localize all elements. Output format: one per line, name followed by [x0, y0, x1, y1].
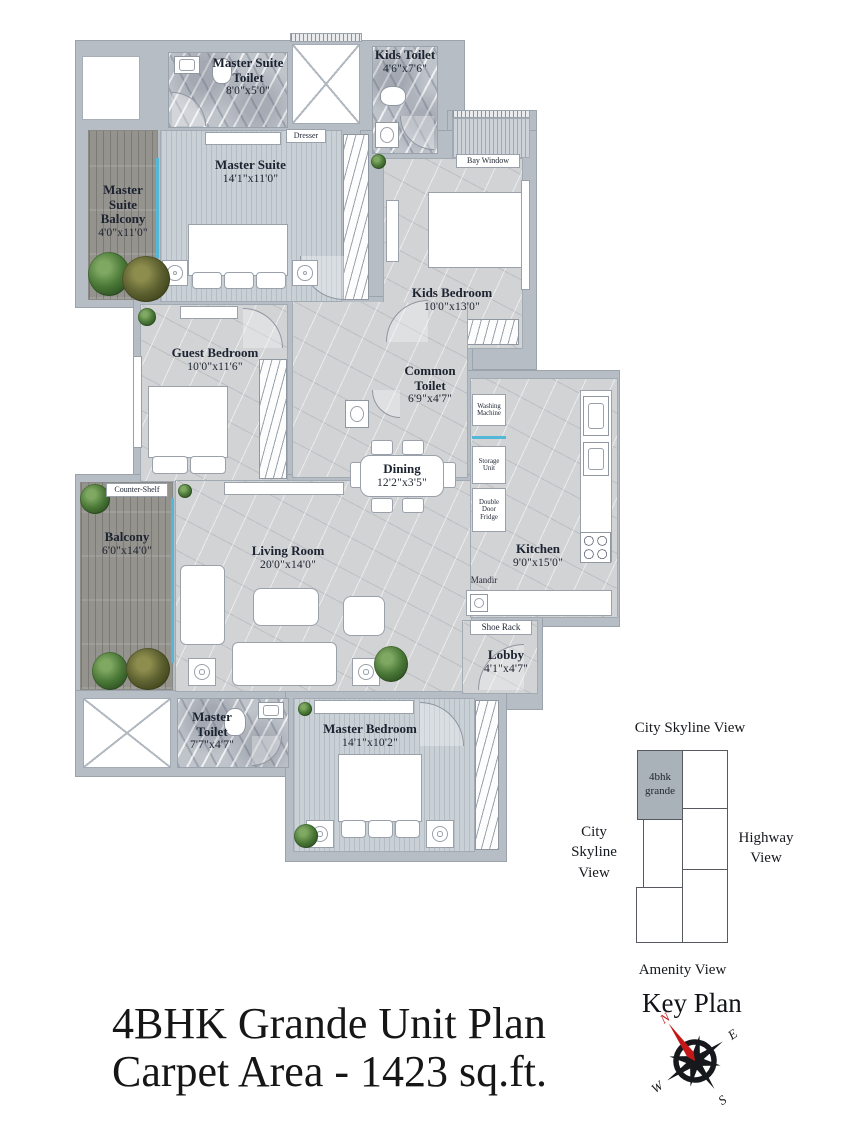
- compass-n: N: [656, 1009, 674, 1028]
- label-kids-toilet: Kids Toilet 4'6"x7'6": [370, 48, 440, 75]
- master-bedroom-wardrobe: [475, 700, 499, 850]
- vent-strip-bay: [452, 110, 530, 118]
- bay-window-strip: [452, 118, 530, 158]
- tag-mandir: Mandir: [460, 574, 508, 587]
- window-kids-bedroom: [521, 180, 530, 290]
- tag-counter-shelf: Counter-Shelf: [106, 483, 168, 497]
- plant: [374, 646, 408, 682]
- keyplan-bottom-label: Amenity View: [615, 960, 750, 980]
- window-guest-bedroom: [133, 356, 142, 448]
- keyplan-unit-cell: 4bhk grande: [637, 750, 683, 820]
- keyplan-cell: [636, 887, 683, 943]
- page-title-line1: 4BHK Grande Unit Plan: [112, 1000, 572, 1048]
- master-pillow: [395, 820, 420, 838]
- master-pillow: [341, 820, 366, 838]
- label-dining: Dining 12'2"x3'5": [360, 455, 444, 497]
- label-master-toilet: Master Toilet 7'7"x4'7": [178, 710, 246, 752]
- kids-desk: [386, 200, 399, 262]
- label-master-suite: Master Suite 14'1"x11'0": [178, 158, 323, 185]
- compass-w: W: [648, 1077, 666, 1096]
- dining-chair: [442, 462, 456, 488]
- dining-chair: [402, 498, 424, 513]
- living-armchair: [343, 596, 385, 636]
- window-utility: [472, 436, 506, 439]
- label-master-suite-toilet: Master Suite Toilet 8'0"x5'0": [208, 56, 288, 98]
- kids-toilet-basin: [375, 122, 399, 148]
- master-suite-pillow: [256, 272, 286, 289]
- plant: [371, 154, 386, 169]
- guest-wardrobe: [259, 359, 287, 479]
- page-title-line2: Carpet Area - 1423 sq.ft.: [112, 1048, 572, 1096]
- keyplan-cell: [643, 819, 683, 888]
- vent-strip-top: [290, 33, 362, 42]
- plant: [126, 648, 170, 690]
- guest-pillow: [152, 456, 188, 474]
- label-lobby: Lobby 4'1"x4'7": [470, 648, 542, 675]
- top-left-notch: [82, 56, 140, 120]
- master-bed: [338, 754, 422, 822]
- living-sofa-left: [180, 565, 225, 645]
- dining-chair: [371, 440, 393, 455]
- tag-bay-window: Bay Window: [456, 154, 520, 168]
- keyplan-left-label: City Skyline View: [566, 822, 622, 883]
- guest-shelf: [180, 306, 238, 319]
- plant: [92, 652, 128, 690]
- plant: [294, 824, 318, 848]
- label-common-toilet: Common Toilet 6'9"x4'7": [394, 364, 466, 406]
- kitchen-sink-2: [583, 442, 609, 476]
- living-sofa-bottom: [232, 642, 337, 686]
- page-title: 4BHK Grande Unit Plan Carpet Area - 1423…: [112, 1000, 572, 1096]
- master-pillow: [368, 820, 393, 838]
- master-toilet-sink: [258, 702, 284, 719]
- master-suite-shelf: [205, 132, 281, 145]
- tv-unit: [224, 482, 344, 495]
- label-balcony: Balcony 6'0"x14'0": [95, 530, 159, 557]
- keyplan-cell: [682, 808, 728, 870]
- coffee-table: [253, 588, 319, 626]
- compass-e: E: [724, 1026, 740, 1043]
- label-guest-bedroom: Guest Bedroom 10'0"x11'6": [150, 346, 280, 373]
- master-suite-pillow: [192, 272, 222, 289]
- label-kitchen: Kitchen 9'0"x15'0": [488, 542, 588, 569]
- living-side-table: [188, 658, 216, 686]
- tag-storage-unit: Storage Unit: [472, 446, 506, 484]
- floor-plan-page: Master Suite Toilet 8'0"x5'0" Kids Toile…: [0, 0, 853, 1133]
- shaft-bottom: [83, 698, 171, 768]
- guest-bed: [148, 386, 228, 458]
- master-bedroom-dresser: [314, 700, 414, 714]
- dining-chair: [402, 440, 424, 455]
- compass-rose: N E S W: [638, 1004, 752, 1118]
- kids-toilet-wc: [380, 86, 406, 106]
- keyplan-right-label: Highway View: [734, 828, 798, 869]
- tag-shoe-rack: Shoe Rack: [470, 620, 532, 635]
- hall-wash-basin: [345, 400, 369, 428]
- tag-dresser: Dresser: [286, 129, 326, 143]
- window-living-balcony: [171, 498, 174, 663]
- master-suite-pillow: [224, 272, 254, 289]
- plant: [298, 702, 312, 716]
- compass-s: S: [715, 1092, 729, 1108]
- guest-pillow: [190, 456, 226, 474]
- master-suite-wardrobe: [343, 134, 369, 300]
- shaft-top: [292, 44, 360, 124]
- plant: [178, 484, 192, 498]
- keyplan-cell: [682, 869, 728, 943]
- keyplan-top-label: City Skyline View: [615, 718, 765, 738]
- master-suite-bed: [188, 224, 288, 276]
- master-side-table: [426, 820, 454, 848]
- keyplan-cell: [682, 750, 728, 809]
- tag-double-door-fridge: Double Door Fridge: [472, 488, 506, 532]
- kitchen-sink: [583, 396, 609, 436]
- label-kids-bedroom: Kids Bedroom 10'0"x13'0": [386, 286, 518, 313]
- label-living-room: Living Room 20'0"x14'0": [228, 544, 348, 571]
- master-suite-side-table: [292, 260, 318, 286]
- dining-chair: [371, 498, 393, 513]
- tag-washing-machine: Washing Machine: [472, 394, 506, 426]
- kids-bed: [428, 192, 522, 268]
- label-master-suite-balcony: Master Suite Balcony 4'0"x11'0": [89, 183, 157, 240]
- plant: [138, 308, 156, 326]
- ms-toilet-sink: [174, 56, 200, 74]
- plant: [122, 256, 170, 302]
- mandir-basin: [470, 594, 488, 612]
- label-master-bedroom: Master Bedroom 14'1"x10'2": [305, 722, 435, 749]
